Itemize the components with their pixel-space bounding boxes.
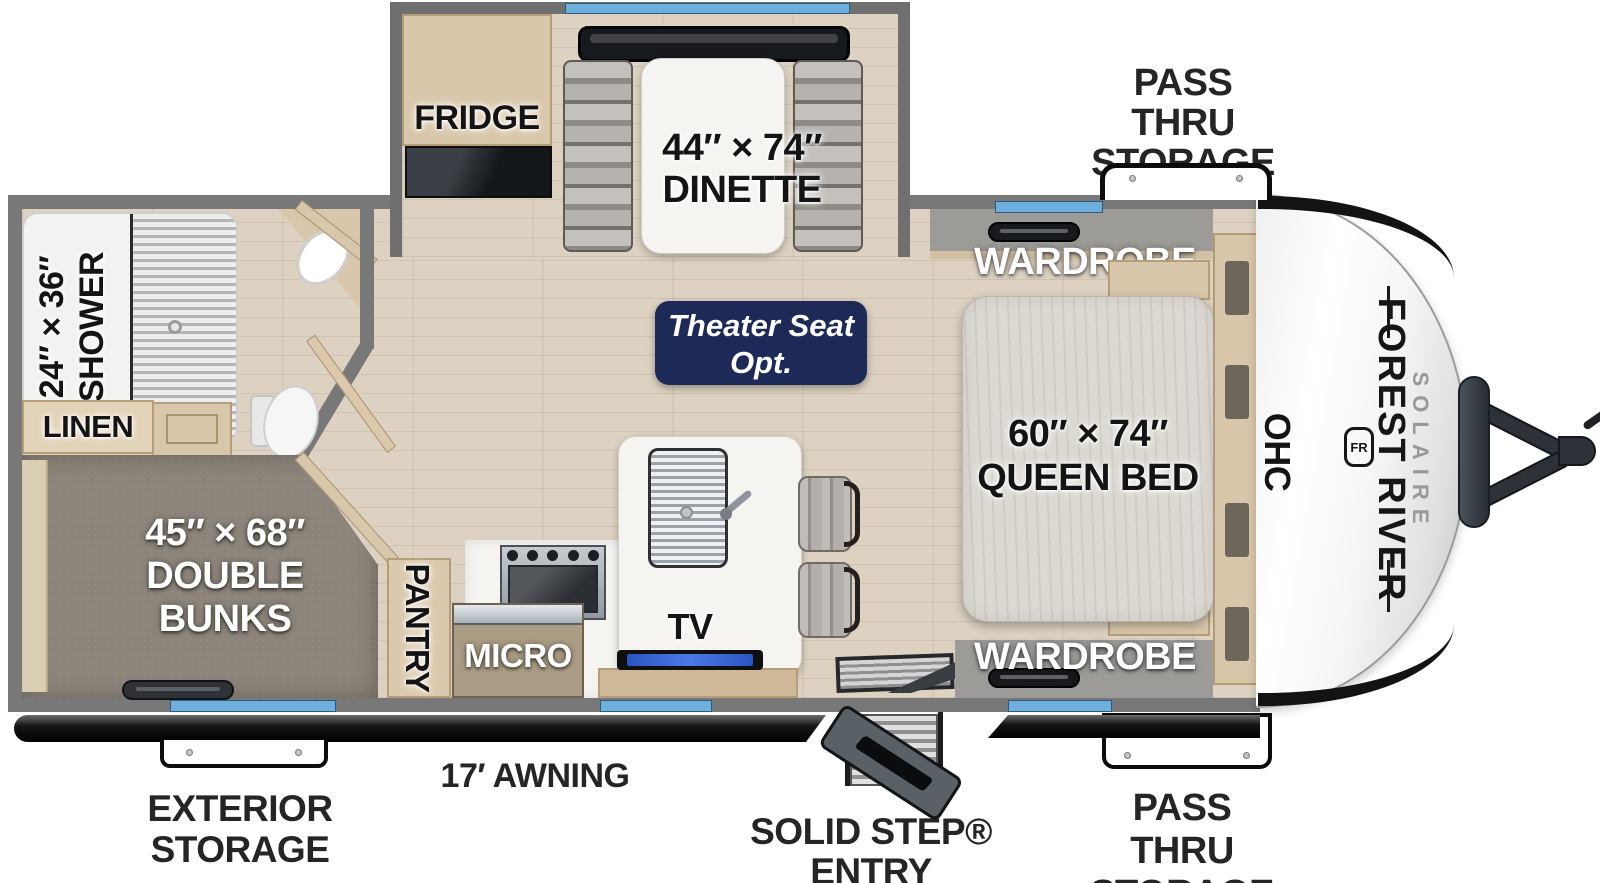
bedroom-top-window [995,201,1103,213]
stool-back-frame [844,567,860,633]
front-passthru-door [1100,163,1272,200]
screw [1124,752,1131,759]
rear-passthru-label: PASS THRU STORAGE [1080,787,1284,883]
dinette-size-text: 44″ × 74″ [612,127,872,169]
exterior-storage-line1: EXTERIOR [138,788,342,829]
theater-seat-option-badge: Theater Seat Opt. [655,301,867,385]
fridge-front [405,146,552,198]
bunks-label: 45″ × 68″ DOUBLE BUNKS [95,512,355,641]
dinette-label: 44″ × 74″ DINETTE [612,127,872,211]
frame-slot [1225,365,1249,419]
frame-slot [1225,503,1249,557]
handle-groove [1000,229,1068,233]
cap-trim-top [1258,196,1454,278]
badge-line2: Opt. [655,344,867,381]
sink-faucet-base [720,508,732,520]
frame-slot [1225,261,1249,315]
kitchen-window [600,700,712,712]
badge-line1: Theater Seat [655,307,867,344]
microwave-top [454,605,582,625]
rear-passthru-line1: PASS THRU [1080,787,1284,873]
tv-screen [617,650,763,670]
screw [1236,175,1243,182]
island-stool [798,476,852,552]
island-stool [798,562,852,638]
tv-label: TV [650,607,730,647]
hitch-coupler [1558,436,1596,466]
bumper-rail [988,715,1260,738]
exterior-storage-line2: STORAGE [138,829,342,870]
bed-size-text: 60″ × 74″ [962,412,1214,456]
hitch-latch-handle [1582,409,1600,430]
awning-label: 17′ AWNING [415,758,655,795]
bunks-size-text: 45″ × 68″ [95,512,355,555]
bunks-line1-text: DOUBLE [95,555,355,598]
dinette-window-glass [590,34,838,43]
bedroom-bottom-window [1008,700,1112,712]
rear-passthru-line2: STORAGE [1080,873,1284,883]
bunkroom-window [170,700,336,712]
screw [1243,752,1250,759]
floorplan-canvas: FRIDGE 44″ × 74″ DINETTE 24″ × 36″ SHOWE… [0,0,1600,883]
hitch-jack-post [1458,376,1490,528]
floor-hatch-inner [136,687,220,691]
frame-slot [1225,607,1249,661]
awning-rail [14,715,826,742]
bath-wall-vertical [360,209,374,349]
linen-label: LINEN [22,410,154,444]
pantry-label: PANTRY [399,558,435,698]
brand-model-label: SOLAIRE [1403,342,1433,562]
front-passthru-line1: PASS THRU [1083,63,1283,143]
queen-bed-label: 60″ × 74″ QUEEN BED [962,412,1214,500]
sink-drain [680,506,693,519]
fridge-label: FRIDGE [402,100,552,137]
exterior-storage-label: EXTERIOR STORAGE [138,788,342,870]
tv-screen-glass [627,654,753,666]
stool-back-frame [844,481,860,547]
slideout-window [565,3,850,14]
exterior-storage-door [160,740,328,768]
floor-hatch-handle [122,680,234,700]
cap-trim-bottom [1258,624,1454,706]
wardrobe-top-handle [988,222,1080,242]
dinette-window [578,26,850,62]
wardrobe-bottom-label: WARDROBE [950,637,1220,679]
bunk-side-trim [22,460,48,692]
solid-step-entry-label: SOLID STEP® ENTRY [690,812,1052,883]
screw [1129,175,1136,182]
screw [186,749,193,756]
dinette-name-text: DINETTE [612,169,872,211]
bath-drawer-cabinet [152,402,232,458]
bunks-line2-text: BUNKS [95,598,355,641]
bath-drawer-face [166,414,218,444]
bed-name-text: QUEEN BED [962,456,1214,500]
shower-drain [168,320,182,334]
stove-knobs [502,547,604,563]
bed-frame-column [1213,233,1259,685]
tv-cabinet [598,668,798,698]
nightstand-top [1108,260,1210,300]
screw [295,749,302,756]
ohc-label: OHC [1257,392,1297,512]
micro-label: MICRO [448,638,588,674]
